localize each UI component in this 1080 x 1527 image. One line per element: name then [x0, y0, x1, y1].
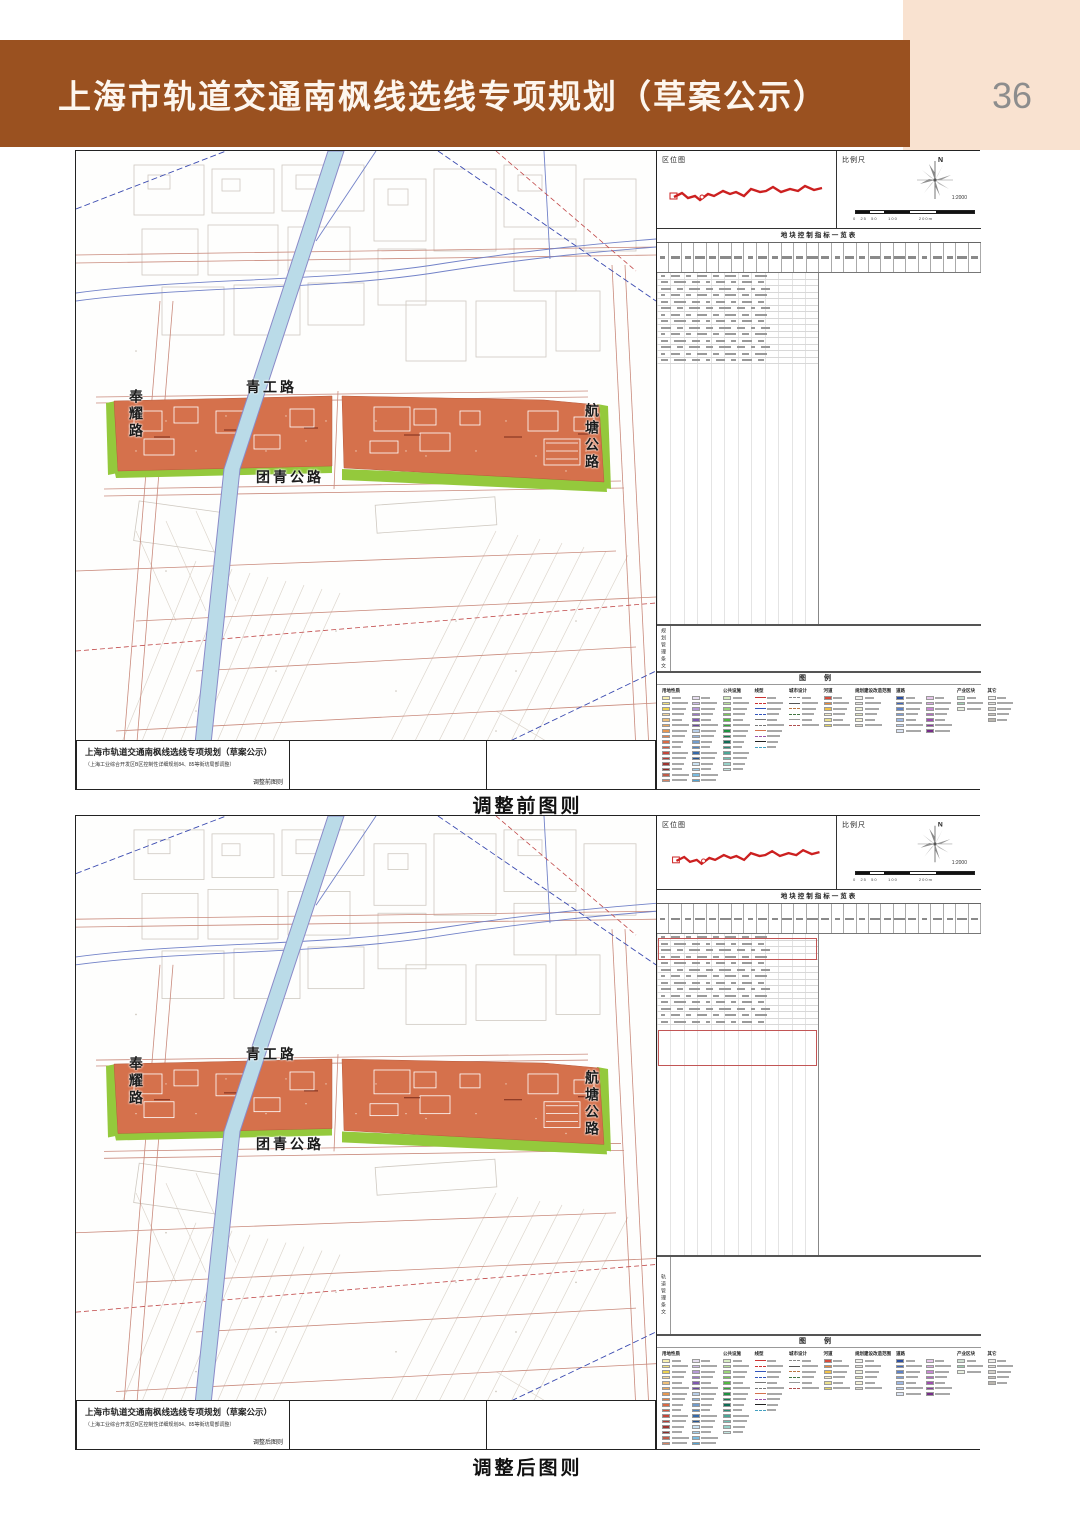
titleblock-empty-cell [290, 1401, 487, 1449]
titleblock-line1: 上海市轨道交通南枫线选线专项规划（草案公示） [85, 1406, 283, 1418]
legend-box: 图 例 用地性质公共设施线型城市设计河道规划建设改造范围道路产业区块其它 [657, 1336, 981, 1449]
document-page: 上海市轨道交通南枫线选线专项规划（草案公示） 36 青工路 奉耀路 团青公路 航… [0, 0, 1080, 1527]
info-column-after: 区位图 比例尺 [656, 816, 981, 1449]
titleblock-line2: （上海工业综合开发区B区控制性详细规划84、85等街坊局部调整） [85, 1421, 283, 1428]
route-line-icon [662, 828, 832, 886]
titleblock-line2: （上海工业综合开发区B区控制性详细规划84、85等街坊局部调整） [85, 761, 283, 768]
table-column-headers [657, 904, 981, 934]
titleblock-sheetname: 调整后图则 [85, 1437, 283, 1446]
table-body-left [657, 273, 819, 624]
road-label-qinggonglu: 青工路 [246, 377, 297, 397]
table-title: 地块控制指标一览表 [657, 890, 981, 904]
plan-map-after: 青工路 奉耀路 团青公路 航塘公路 [76, 816, 656, 1449]
legend-swatches: 用地性质公共设施线型城市设计河道规划建设改造范围道路产业区块其它 [657, 1348, 981, 1449]
scale-label: 比例尺 [842, 155, 866, 165]
title-block-before: 上海市轨道交通南枫线选线专项规划（草案公示） （上海工业综合开发区B区控制性详细… [76, 740, 656, 790]
road-label-qinggonglu: 青工路 [246, 1044, 297, 1064]
road-label-tuanqinggonglu: 团青公路 [256, 1134, 324, 1154]
scale-box: 比例尺 N 1:2000 [837, 151, 981, 228]
scale-ratio: 1:2000 [952, 195, 967, 201]
legend-swatches: 用地性质公共设施线型城市设计河道规划建设改造范围道路产业区块其它 [657, 685, 981, 786]
scalebar-icon [855, 210, 975, 214]
scalebar-ticks: 0 25 50 100 200m [853, 877, 933, 882]
table-column-headers [657, 243, 981, 273]
titleblock-end-cell [487, 1401, 655, 1449]
location-map-box: 区位图 [657, 151, 837, 228]
table-body-left [657, 934, 819, 1254]
table-body-right [819, 934, 981, 1254]
legend-title: 图 例 [657, 673, 981, 685]
plan-map-before: 青工路 奉耀路 团青公路 航塘公路 [76, 151, 656, 789]
scale-ratio: 1:2000 [952, 860, 967, 866]
plot-indicator-table: 地块控制指标一览表 [657, 890, 981, 1256]
scalebar-ticks: 0 25 50 100 200m [853, 216, 933, 221]
titleblock-sheetname: 调整前图则 [85, 777, 283, 786]
header-banner: 上海市轨道交通南枫线选线专项规划（草案公示） [0, 40, 910, 147]
road-label-tuanqinggonglu: 团青公路 [256, 467, 324, 487]
road-label-hangtanggonglu: 航塘公路 [582, 403, 602, 471]
management-provisions-box: 轨道管理条文 [657, 1257, 981, 1336]
table-body-right [819, 273, 981, 624]
caption-after: 调整后图则 [75, 1453, 980, 1480]
north-letter: N [938, 822, 943, 829]
title-block-after: 上海市轨道交通南枫线选线专项规划（草案公示） （上海工业综合开发区B区控制性详细… [76, 1400, 656, 1450]
page-title: 上海市轨道交通南枫线选线专项规划（草案公示） [0, 70, 828, 118]
plan-sheet-after: 青工路 奉耀路 团青公路 航塘公路 区位图 比例尺 [75, 815, 980, 1450]
scale-box: 比例尺 N 1:2000 [837, 816, 981, 889]
legend-title: 图 例 [657, 1336, 981, 1348]
provisions-label: 轨道管理条文 [660, 1274, 667, 1316]
titleblock-line1: 上海市轨道交通南枫线选线专项规划（草案公示） [85, 746, 283, 758]
titleblock-end-cell [487, 741, 655, 789]
legend-box: 图 例 用地性质公共设施线型城市设计河道规划建设改造范围道路产业区块其它 [657, 673, 981, 789]
table-title: 地块控制指标一览表 [657, 229, 981, 243]
plot-indicator-table: 地块控制指标一览表 [657, 229, 981, 626]
titleblock-empty-cell [290, 741, 487, 789]
road-label-fengyaolu: 奉耀路 [126, 389, 146, 440]
management-provisions-box: 规划管理条文 [657, 626, 981, 673]
caption-before: 调整前图则 [75, 791, 980, 818]
page-number: 36 [992, 75, 1032, 117]
plan-sheet-before: 青工路 奉耀路 团青公路 航塘公路 区位图 比例尺 [75, 150, 980, 790]
road-label-fengyaolu: 奉耀路 [126, 1056, 146, 1107]
info-column-before: 区位图 比例尺 [656, 151, 981, 789]
road-label-hangtanggonglu: 航塘公路 [582, 1070, 602, 1138]
north-letter: N [938, 157, 943, 164]
provisions-label: 规划管理条文 [660, 628, 667, 670]
scalebar-icon [855, 871, 975, 875]
route-line-icon [662, 163, 832, 223]
scale-label: 比例尺 [842, 820, 866, 830]
location-map-box: 区位图 [657, 816, 837, 889]
